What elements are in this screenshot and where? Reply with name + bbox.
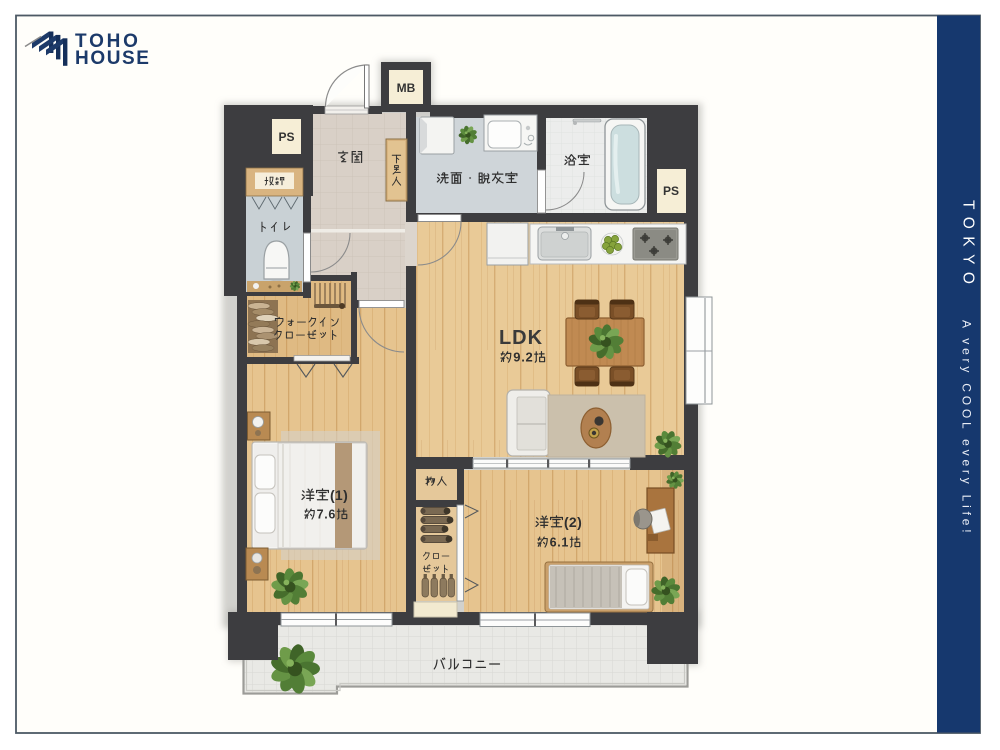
svg-text:PS: PS bbox=[278, 130, 294, 144]
svg-text:MB: MB bbox=[397, 81, 416, 95]
svg-text:2: 2 bbox=[525, 350, 532, 365]
svg-text:6: 6 bbox=[328, 508, 335, 522]
svg-text:1: 1 bbox=[335, 487, 343, 503]
svg-text:7: 7 bbox=[317, 508, 324, 522]
svg-text:.: . bbox=[521, 350, 525, 365]
svg-text:HOUSE: HOUSE bbox=[75, 48, 151, 69]
svg-text:.: . bbox=[557, 536, 560, 550]
svg-text:): ) bbox=[577, 514, 582, 530]
svg-text:): ) bbox=[343, 487, 348, 503]
svg-text:2: 2 bbox=[569, 514, 577, 530]
svg-text:PS: PS bbox=[663, 184, 679, 198]
svg-text:.: . bbox=[324, 508, 327, 522]
svg-text:TOKYO: TOKYO bbox=[960, 200, 977, 291]
svg-text:A very COOL every Life!: A very COOL every Life! bbox=[960, 320, 974, 536]
svg-text:LDK: LDK bbox=[499, 327, 543, 349]
svg-text:1: 1 bbox=[561, 536, 568, 550]
svg-text:6: 6 bbox=[550, 536, 557, 550]
svg-text:9: 9 bbox=[513, 350, 520, 365]
